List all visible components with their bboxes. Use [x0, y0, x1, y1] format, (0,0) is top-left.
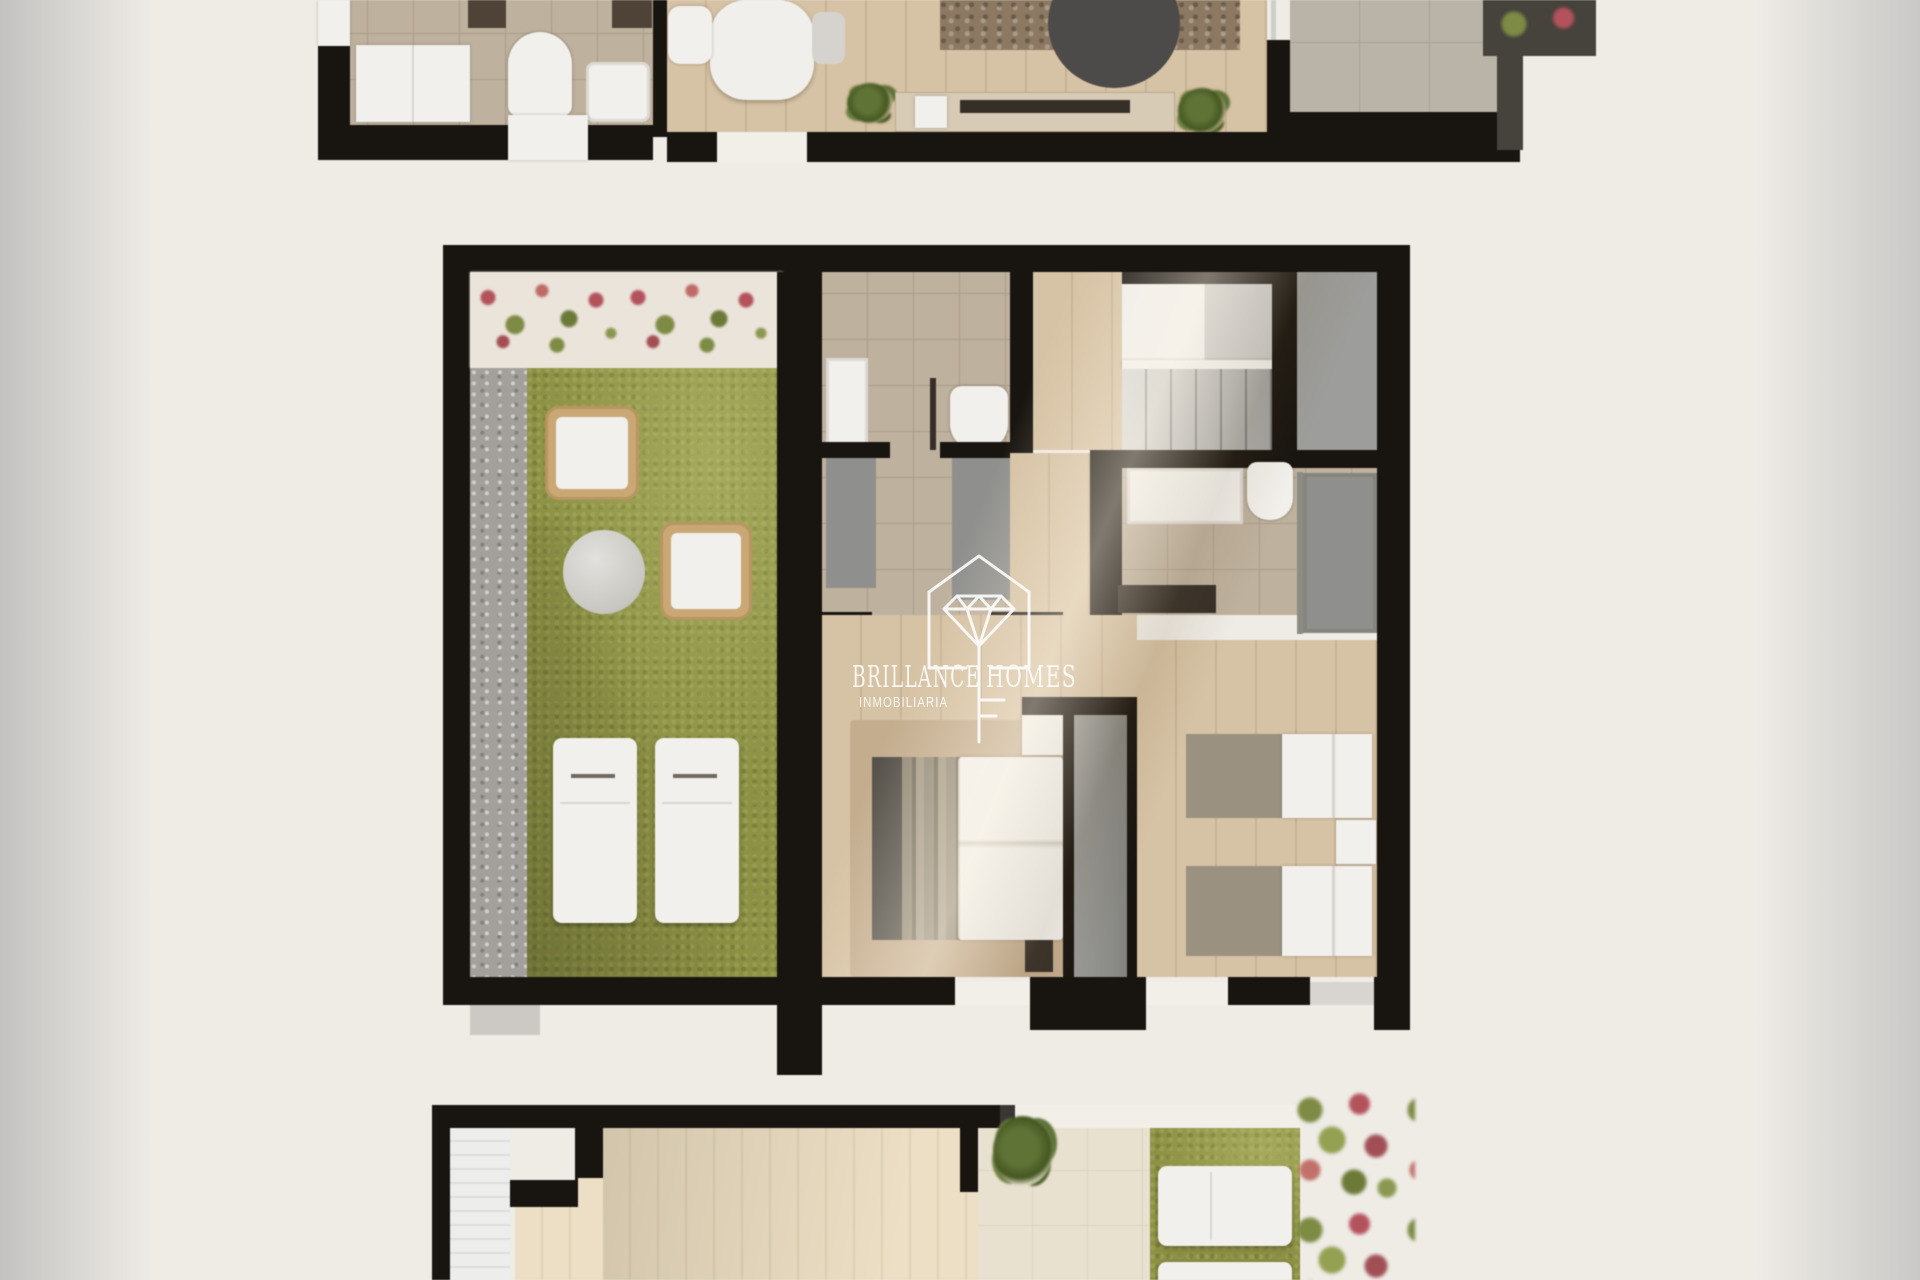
wall: [432, 1105, 450, 1280]
left-gradient-band: [0, 0, 152, 1280]
wall: [575, 1123, 603, 1180]
flowering-shrubs: [1288, 1086, 1415, 1280]
wall: [510, 1180, 578, 1207]
roof-deck-floor: [578, 1178, 603, 1280]
sun-lounger: [1158, 1166, 1292, 1246]
walkway: [1015, 1105, 1300, 1128]
wall: [432, 1105, 1015, 1128]
right-gradient-band: [1756, 0, 1920, 1280]
floorplan-render-image: BRILLANCE HOMES INMOBILIARIA: [0, 0, 1920, 1280]
stairwell-void: [450, 1128, 510, 1280]
potted-plant: [993, 1116, 1053, 1186]
lounger-seam: [1210, 1172, 1212, 1239]
roof-deck-floor: [515, 1207, 578, 1280]
sun-lounger: [1158, 1262, 1292, 1280]
lower-floor-plan: [0, 0, 1920, 1280]
wall-stub: [960, 1128, 978, 1192]
roof-deck-floor: [603, 1128, 978, 1280]
